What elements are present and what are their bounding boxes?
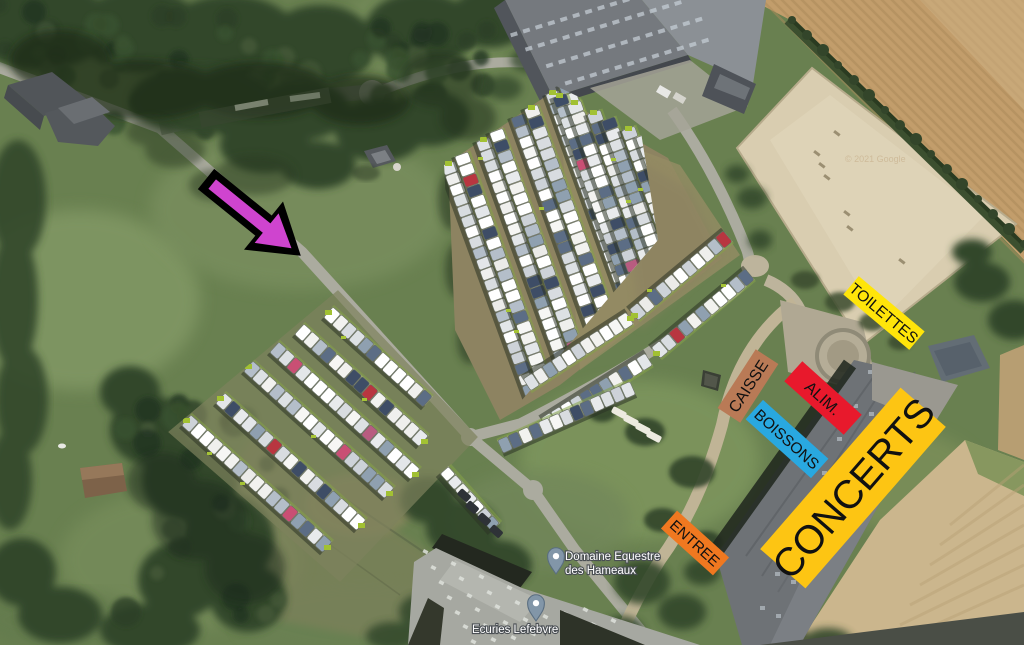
svg-text:Ecuries Lefebvre: Ecuries Lefebvre: [472, 624, 558, 636]
svg-text:Domaine Equestre: Domaine Equestre: [565, 551, 660, 563]
svg-text:des Hameaux: des Hameaux: [565, 565, 636, 577]
svg-text:© 2021 Google: © 2021 Google: [845, 154, 906, 164]
